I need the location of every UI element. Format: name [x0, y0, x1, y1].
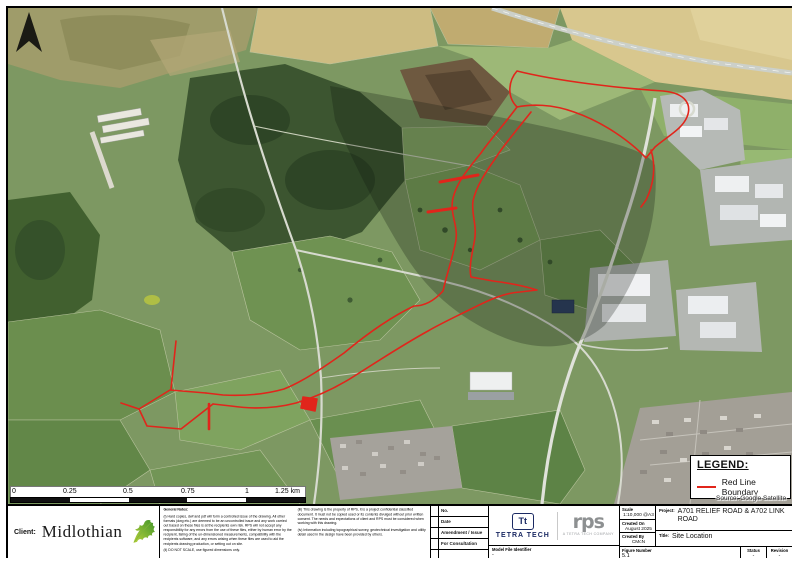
created-by-label: Created By	[622, 534, 655, 539]
issue-row-label: No.	[439, 506, 448, 516]
created-by-cell: Created By CMcN	[620, 533, 655, 546]
tetra-tech-logo: Tt TETRA TECH	[489, 513, 557, 539]
created-on-value: August 2025	[622, 527, 655, 532]
model-file-cell: Model File Identifier -	[489, 545, 619, 558]
project-value: A701 RELIEF ROAD & A702 LINK ROAD	[678, 508, 790, 530]
scale-tick-label: 1	[245, 488, 249, 495]
map-canvas	[8, 8, 792, 504]
issue-row-label: Amendment / Issue	[439, 528, 482, 538]
issue-row: Date	[431, 517, 488, 528]
project-cell: Project: A701 RELIEF ROAD & A702 LINK RO…	[656, 506, 792, 531]
scale-tick-label: 0.5	[123, 488, 133, 495]
title-label: Title:	[659, 533, 669, 546]
title-value: Site Location	[672, 533, 712, 546]
legend-title: LEGEND:	[697, 459, 784, 471]
issue-record-table: No. Date Amendment / Issue For Consultat…	[431, 506, 489, 558]
scale-tick-label: 0	[12, 488, 16, 495]
note-ii: (ii) DO NOT SCALE, use figured dimension…	[163, 549, 291, 554]
general-notes-heading: General Notes:	[163, 508, 291, 513]
scale-cell: Scale 1:10,000 @A3	[620, 506, 655, 520]
red-line-swatch	[697, 486, 716, 488]
model-file-value: -	[492, 552, 619, 558]
status-value: -	[741, 553, 766, 559]
note-iv: (iv) Information including topographical…	[298, 529, 426, 538]
oak-leaf-icon	[128, 516, 159, 548]
scale-tick-label: 1.25 km	[275, 488, 300, 495]
map-source-attribution: Source: Google Satellite	[716, 495, 786, 502]
figure-number-value: 5.1	[622, 553, 740, 559]
legend-item: Red Line Boundary	[697, 477, 784, 497]
scale-value: 1:10,000 @A3	[622, 513, 655, 518]
note-iii: (iii) This drawing is the property of RP…	[298, 508, 426, 526]
revision-value: -	[767, 553, 792, 559]
satellite-map	[8, 8, 792, 504]
scale-tick-label: 0.25	[63, 488, 77, 495]
issue-row-label: For Consultation	[439, 539, 477, 549]
rps-logo: rps A TETRA TECH COMPANY	[558, 515, 619, 536]
client-label: Client:	[14, 529, 36, 536]
rps-wordmark: rps	[573, 515, 604, 530]
logos-panel: Tt TETRA TECH rps A TETRA TECH COMPANY M…	[489, 506, 620, 558]
issue-row: No.	[431, 506, 488, 517]
issue-row-empty	[431, 550, 488, 558]
scale-label: Scale	[622, 507, 655, 512]
scale-tick-label: 0.75	[181, 488, 195, 495]
issue-row: For Consultation	[431, 539, 488, 550]
created-on-label: Created On	[622, 521, 655, 526]
created-by-value: CMcN	[622, 540, 655, 545]
drawing-info-panel: Scale 1:10,000 @A3 Created On August 202…	[620, 506, 792, 558]
created-on-cell: Created On August 2025	[620, 520, 655, 534]
client-name: Midlothian	[42, 522, 123, 542]
title-cell: Title: Site Location	[656, 531, 792, 546]
general-notes-panel: General Notes: (i) Hard copies, dwf and …	[160, 506, 431, 558]
figure-number-cell: Figure Number 5.1	[620, 547, 741, 558]
revision-cell: Revision -	[767, 547, 792, 558]
title-block: Client: Midlothian General Notes: (i) Ha…	[8, 504, 792, 558]
rps-tagline: A TETRA TECH COMPANY	[563, 532, 614, 536]
tetra-tech-wordmark: TETRA TECH	[496, 532, 550, 539]
legend-item-label: Red Line Boundary	[722, 477, 784, 497]
issue-row: Amendment / Issue	[431, 528, 488, 539]
tetra-tech-monogram-icon: Tt	[512, 513, 534, 530]
client-panel: Client: Midlothian	[8, 506, 160, 558]
legend-box: LEGEND: Red Line Boundary	[690, 455, 791, 499]
scale-bar	[10, 497, 306, 503]
issue-row-label: Date	[439, 517, 451, 527]
note-i: (i) Hard copies, dwf and pdf will form a…	[163, 515, 291, 547]
project-label: Project:	[659, 508, 675, 530]
status-cell: Status -	[741, 547, 767, 558]
